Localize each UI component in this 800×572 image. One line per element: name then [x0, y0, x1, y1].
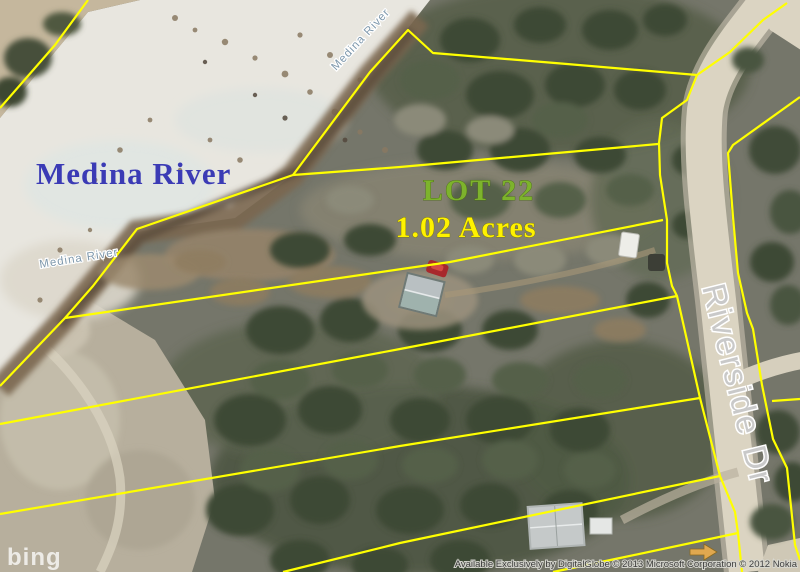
map-svg: Riverside Dr Medina River Medina River M… [0, 0, 800, 572]
acres-label: 1.02 Acres [395, 211, 536, 244]
attribution-text: Available Exclusively by DigitalGlobe © … [455, 559, 798, 570]
white-trailer [618, 232, 639, 258]
aerial-map: Riverside Dr Medina River Medina River M… [0, 0, 800, 572]
lot-label: LOT 22 [423, 174, 535, 207]
river-label: Medina River [36, 156, 231, 191]
shed [590, 518, 612, 534]
bing-watermark: bing [7, 544, 62, 571]
dark-vehicle [648, 254, 665, 271]
